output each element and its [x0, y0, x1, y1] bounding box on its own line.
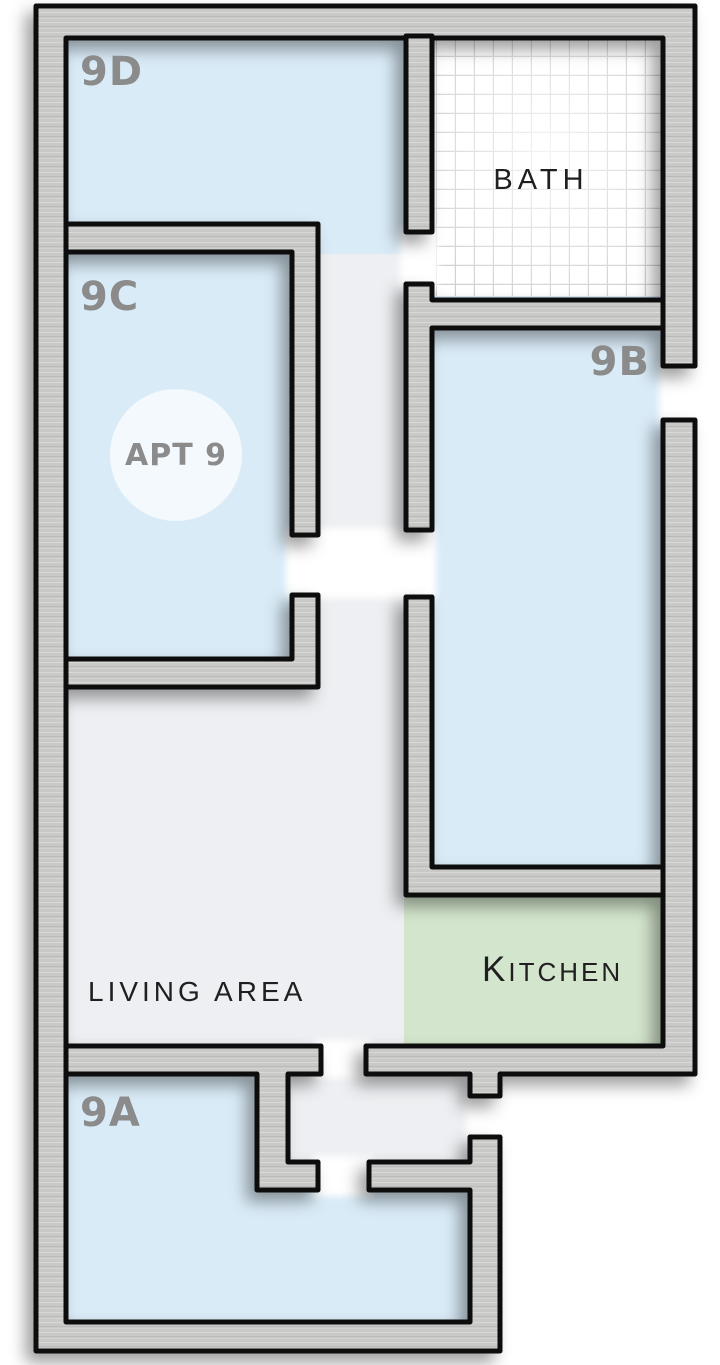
room-9c-label: 9C: [80, 274, 139, 320]
bath-door-opening: [400, 228, 438, 288]
vestibule-9a-door: [313, 1156, 373, 1196]
entry-door-opening: [466, 1092, 504, 1141]
bath-label: BATH: [493, 164, 588, 196]
kitchen-label-initial: K: [482, 950, 508, 989]
living-area-label: LIVING AREA: [88, 976, 306, 1007]
kitchen-label-rest: ITCHEN: [508, 957, 623, 987]
apt-badge-label: APT 9: [125, 438, 227, 473]
room-9d-label: 9D: [80, 49, 143, 95]
window-opening-9b: [659, 362, 701, 424]
room-9a-label: 9A: [80, 1090, 141, 1136]
wall-bath-left: [406, 36, 432, 232]
living-vestibule-door: [316, 1040, 370, 1078]
floor-plan: 9D 9C 9B 9A APT 9 BATH KITCHEN LIVING AR…: [0, 0, 720, 1365]
hall-doors-opening: [286, 528, 436, 598]
floor-plan-canvas: 9D 9C 9B 9A APT 9 BATH KITCHEN LIVING AR…: [0, 0, 720, 1365]
room-9b-label: 9B: [590, 339, 650, 385]
